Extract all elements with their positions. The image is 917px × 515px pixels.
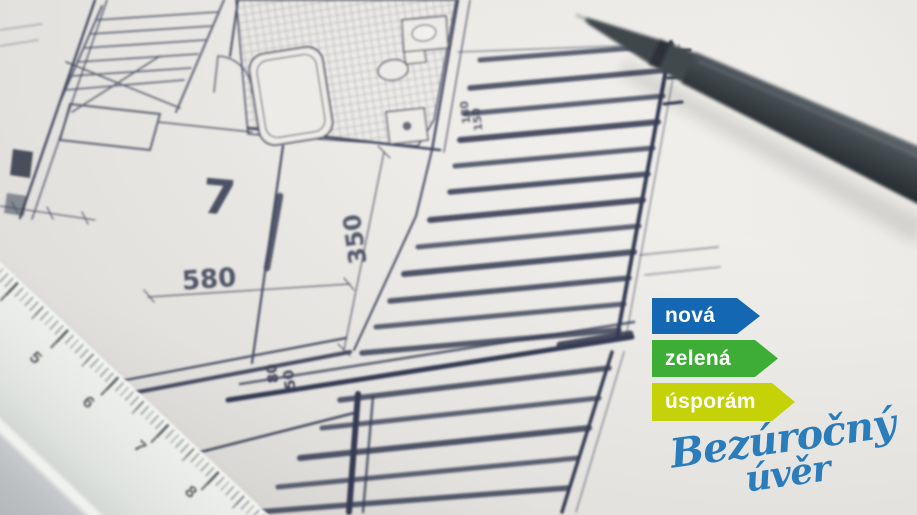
bathroom bbox=[230, 0, 456, 150]
logo-badge-nova: nová bbox=[652, 298, 760, 334]
corner-sketch-lines bbox=[0, 24, 42, 46]
staircase bbox=[60, 0, 252, 150]
nova-zelena-usporam-logo: nová zelená úsporám Bezúročný úvěr bbox=[652, 298, 917, 491]
ruler-number-7: 7 bbox=[129, 436, 150, 457]
logo-badge-usporam-label: úsporám bbox=[665, 390, 756, 414]
ruler-number-6: 6 bbox=[78, 392, 99, 413]
dim-50: 50 bbox=[281, 369, 299, 391]
washer bbox=[386, 108, 428, 144]
ruler-number-8: 8 bbox=[180, 482, 201, 503]
dim-580: 580 bbox=[181, 263, 237, 297]
bathtub bbox=[247, 45, 334, 147]
ruler-number-5: 5 bbox=[25, 348, 46, 369]
logo-badge-nova-label: nová bbox=[665, 304, 715, 328]
dim-80: 80 bbox=[264, 363, 282, 385]
sink bbox=[402, 16, 448, 52]
pen-cone bbox=[583, 9, 659, 63]
dim-350: 350 bbox=[338, 212, 373, 266]
logo-badge-zelena: zelená bbox=[652, 340, 778, 377]
logo-badge-zelena-label: zelená bbox=[665, 347, 731, 371]
room-number: 7 bbox=[200, 169, 238, 228]
promo-banner: 7 580 350 80 50 180 150 4 5 bbox=[0, 0, 917, 515]
